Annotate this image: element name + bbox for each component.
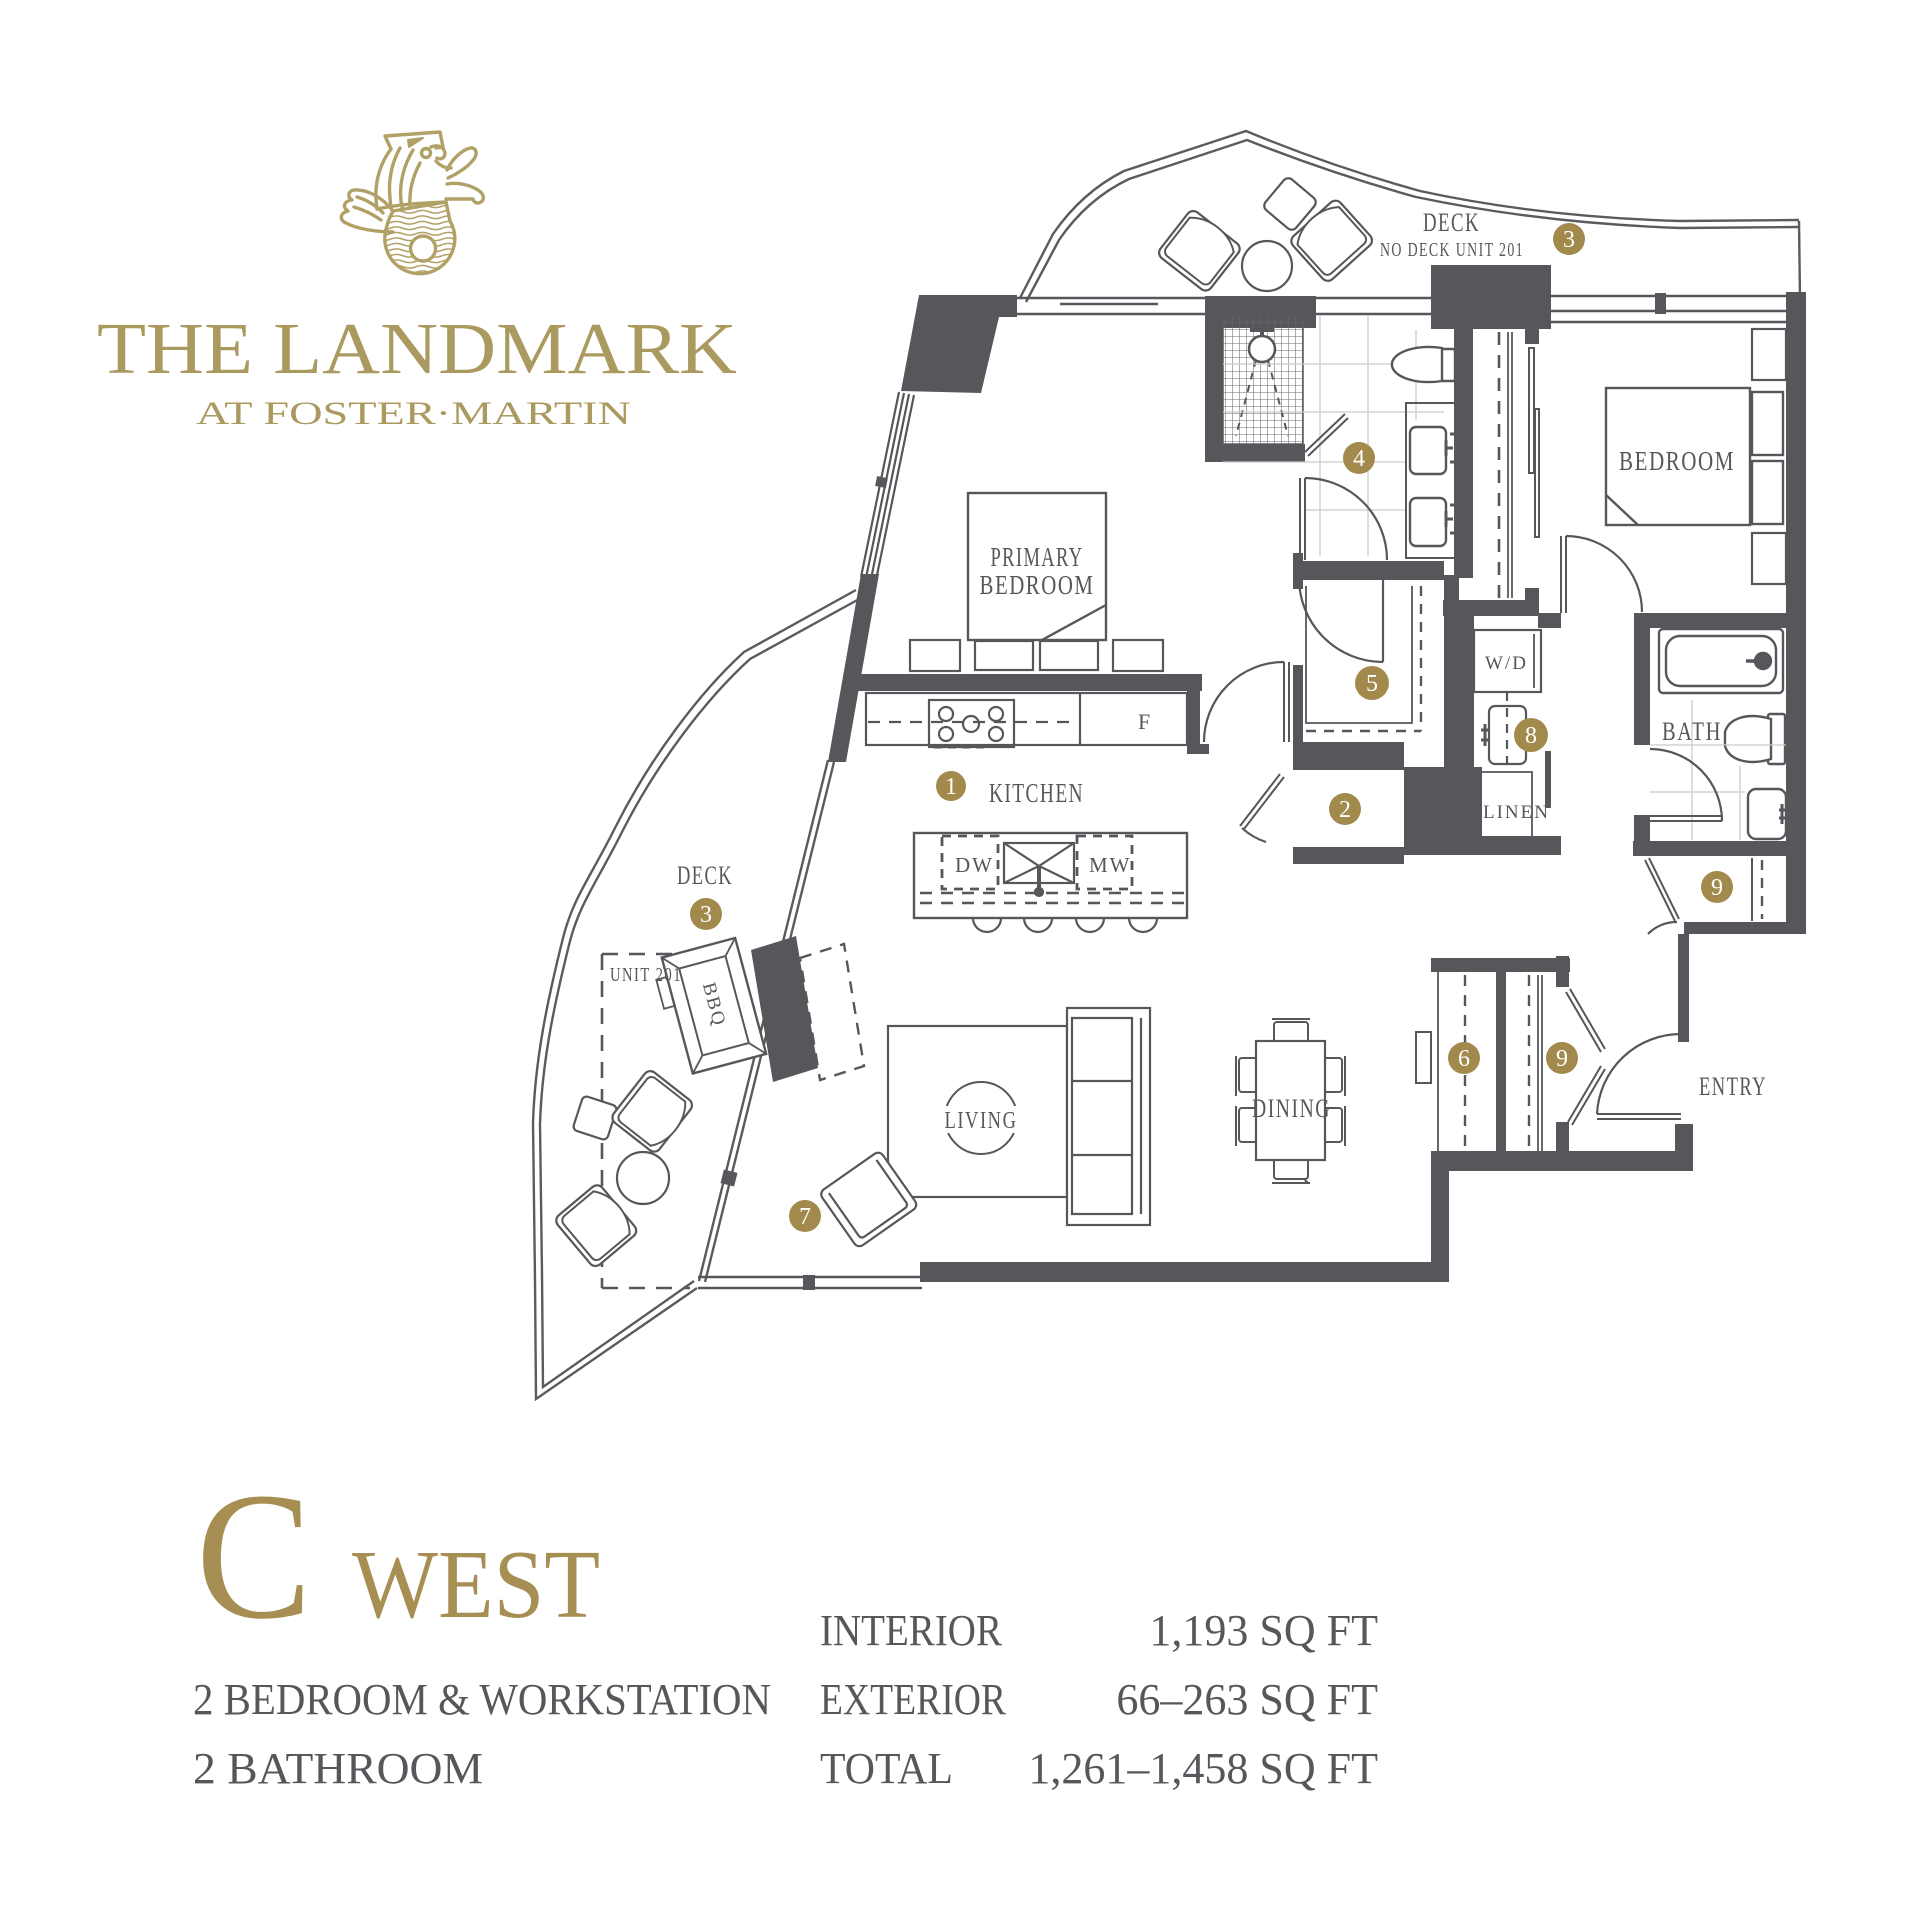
svg-text:MW: MW bbox=[1089, 853, 1132, 877]
svg-text:THE LANDMARK: THE LANDMARK bbox=[97, 308, 737, 389]
svg-text:9: 9 bbox=[1556, 1046, 1568, 1072]
svg-text:6: 6 bbox=[1458, 1046, 1470, 1072]
svg-text:1,261–1,458 SQ FT: 1,261–1,458 SQ FT bbox=[1028, 1744, 1378, 1793]
svg-text:4: 4 bbox=[1353, 446, 1365, 472]
svg-text:8: 8 bbox=[1525, 723, 1537, 749]
svg-text:DECK: DECK bbox=[1423, 208, 1480, 237]
svg-text:BEDROOM: BEDROOM bbox=[980, 570, 1095, 600]
svg-text:F: F bbox=[1138, 709, 1152, 734]
svg-text:W/D: W/D bbox=[1485, 653, 1528, 674]
svg-text:TOTAL: TOTAL bbox=[820, 1744, 953, 1793]
svg-text:9: 9 bbox=[1711, 875, 1723, 901]
svg-text:DINING: DINING bbox=[1252, 1094, 1331, 1123]
svg-text:WEST: WEST bbox=[352, 1531, 600, 1638]
svg-text:7: 7 bbox=[799, 1204, 811, 1230]
svg-text:2 BATHROOM: 2 BATHROOM bbox=[193, 1744, 483, 1793]
svg-text:DW: DW bbox=[955, 853, 994, 877]
svg-text:UNIT 201: UNIT 201 bbox=[610, 964, 682, 986]
svg-text:3: 3 bbox=[700, 902, 712, 928]
svg-text:2: 2 bbox=[1339, 797, 1351, 823]
svg-text:C: C bbox=[196, 1456, 312, 1657]
svg-text:LIVING: LIVING bbox=[945, 1108, 1018, 1134]
svg-text:2 BEDROOM & WORKSTATION: 2 BEDROOM & WORKSTATION bbox=[193, 1675, 771, 1724]
svg-text:ENTRY: ENTRY bbox=[1699, 1072, 1767, 1101]
svg-text:1,193 SQ FT: 1,193 SQ FT bbox=[1149, 1606, 1378, 1655]
svg-text:INTERIOR: INTERIOR bbox=[820, 1606, 1003, 1655]
svg-text:PRIMARY: PRIMARY bbox=[991, 542, 1084, 572]
svg-text:LINEN: LINEN bbox=[1483, 802, 1550, 823]
svg-text:DECK: DECK bbox=[677, 861, 733, 890]
svg-text:1: 1 bbox=[945, 774, 957, 800]
svg-text:NO DECK UNIT 201: NO DECK UNIT 201 bbox=[1380, 239, 1524, 261]
svg-text:BEDROOM: BEDROOM bbox=[1619, 446, 1735, 476]
svg-text:3: 3 bbox=[1563, 227, 1575, 253]
svg-text:KITCHEN: KITCHEN bbox=[989, 778, 1084, 808]
svg-text:66–263 SQ FT: 66–263 SQ FT bbox=[1116, 1675, 1378, 1724]
svg-text:AT FOSTER·MARTIN: AT FOSTER·MARTIN bbox=[196, 396, 631, 432]
svg-text:5: 5 bbox=[1366, 671, 1378, 697]
svg-text:EXTERIOR: EXTERIOR bbox=[820, 1675, 1007, 1724]
